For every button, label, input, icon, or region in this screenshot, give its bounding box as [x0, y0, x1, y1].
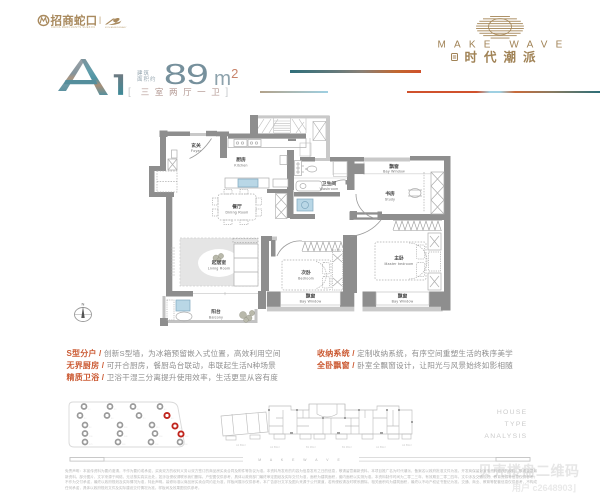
svg-text:次卧: 次卧: [301, 269, 311, 276]
svg-text:飘窗: 飘窗: [305, 293, 316, 300]
svg-text:Bay Window: Bay Window: [383, 170, 405, 174]
svg-text:厨房: 厨房: [236, 156, 246, 163]
svg-text:餐厅: 餐厅: [231, 203, 242, 210]
svg-text:Bay Window: Bay Window: [392, 300, 414, 304]
svg-text:A2 89m²: A2 89m²: [236, 443, 246, 447]
svg-text:Balcony: Balcony: [209, 316, 223, 320]
svg-text:Kitchen: Kitchen: [234, 164, 247, 168]
svg-text:Bay Window: Bay Window: [300, 300, 322, 304]
svg-text:20#: 20#: [184, 444, 188, 446]
svg-text:Living Room: Living Room: [208, 267, 230, 271]
svg-text:B1 96m²: B1 96m²: [342, 445, 352, 449]
svg-text:书房: 书房: [385, 190, 395, 197]
svg-text:Study: Study: [385, 198, 395, 202]
svg-text:阳台: 阳台: [211, 308, 221, 315]
svg-text:Dining Room: Dining Room: [226, 211, 249, 215]
svg-text:起居室: 起居室: [211, 259, 227, 266]
svg-text:16#: 16#: [185, 436, 189, 438]
svg-text:卫生间: 卫生间: [322, 180, 337, 187]
svg-text:A2 89m²: A2 89m²: [402, 443, 412, 447]
svg-text:Washroom: Washroom: [320, 187, 339, 191]
svg-text:玄关: 玄关: [191, 142, 201, 149]
svg-text:B1 96m²: B1 96m²: [306, 445, 316, 449]
svg-text:N: N: [82, 302, 85, 307]
svg-text:Master bedroom: Master bedroom: [385, 262, 414, 266]
svg-text:12#: 12#: [179, 428, 183, 430]
svg-text:A1 89m²: A1 89m²: [376, 445, 386, 449]
svg-text:Bedroom: Bedroom: [298, 277, 314, 281]
svg-text:主卧: 主卧: [394, 255, 404, 262]
svg-text:飘窗: 飘窗: [397, 293, 408, 300]
svg-text:M A K E W A V E: M A K E W A V E: [258, 458, 343, 462]
svg-text:A1 89m²: A1 89m²: [270, 445, 280, 449]
svg-text:Foyer: Foyer: [191, 149, 202, 153]
